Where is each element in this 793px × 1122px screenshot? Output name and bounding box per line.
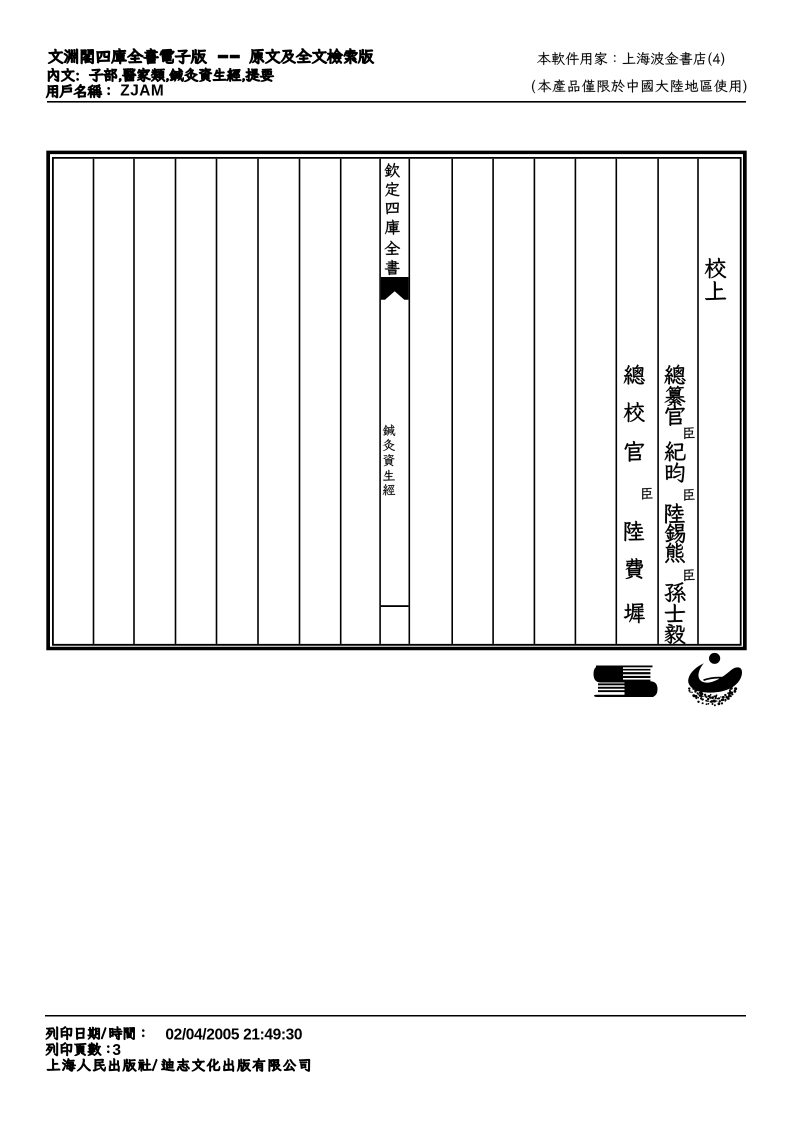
svg-text:ZJAM: ZJAM <box>120 83 164 100</box>
svg-text:3: 3 <box>112 1042 121 1059</box>
svg-text:02/04/2005 21:49:30: 02/04/2005 21:49:30 <box>165 1027 302 1044</box>
